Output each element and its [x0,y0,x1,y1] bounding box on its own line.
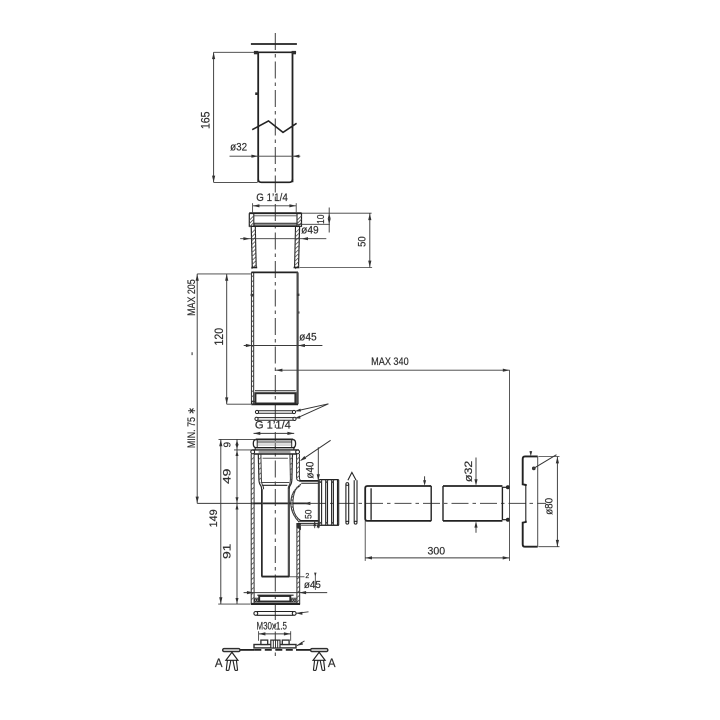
svg-text:165: 165 [198,111,212,129]
svg-text:-: - [186,351,198,355]
svg-text:149: 149 [208,509,220,527]
svg-text:ø49: ø49 [301,224,319,236]
svg-text:50: 50 [303,510,313,520]
svg-text:G 1’1/4: G 1’1/4 [256,192,288,204]
svg-text:ø45: ø45 [299,331,317,343]
svg-text:G 1’1/4: G 1’1/4 [255,419,291,431]
svg-text:A: A [215,658,223,670]
svg-text:50: 50 [357,236,369,247]
svg-text:MIN. 75 ∗: MIN. 75 ∗ [186,407,198,448]
svg-text:91: 91 [221,544,233,560]
svg-text:10: 10 [316,214,327,224]
svg-text:2: 2 [305,573,309,580]
svg-text:ø40: ø40 [305,462,317,479]
svg-text:ø45: ø45 [304,579,321,591]
svg-text:ø32: ø32 [463,461,475,483]
svg-text:MAX 205: MAX 205 [186,279,198,316]
svg-text:ø32: ø32 [230,142,247,154]
svg-text:49: 49 [221,469,233,485]
svg-text:9: 9 [223,441,234,447]
svg-text:MAX 340: MAX 340 [371,356,409,368]
svg-text:120: 120 [214,328,226,346]
svg-text:ø80: ø80 [543,498,555,515]
svg-text:300: 300 [428,546,446,558]
svg-text:A: A [328,658,336,670]
svg-text:M30x1.5: M30x1.5 [256,621,287,633]
